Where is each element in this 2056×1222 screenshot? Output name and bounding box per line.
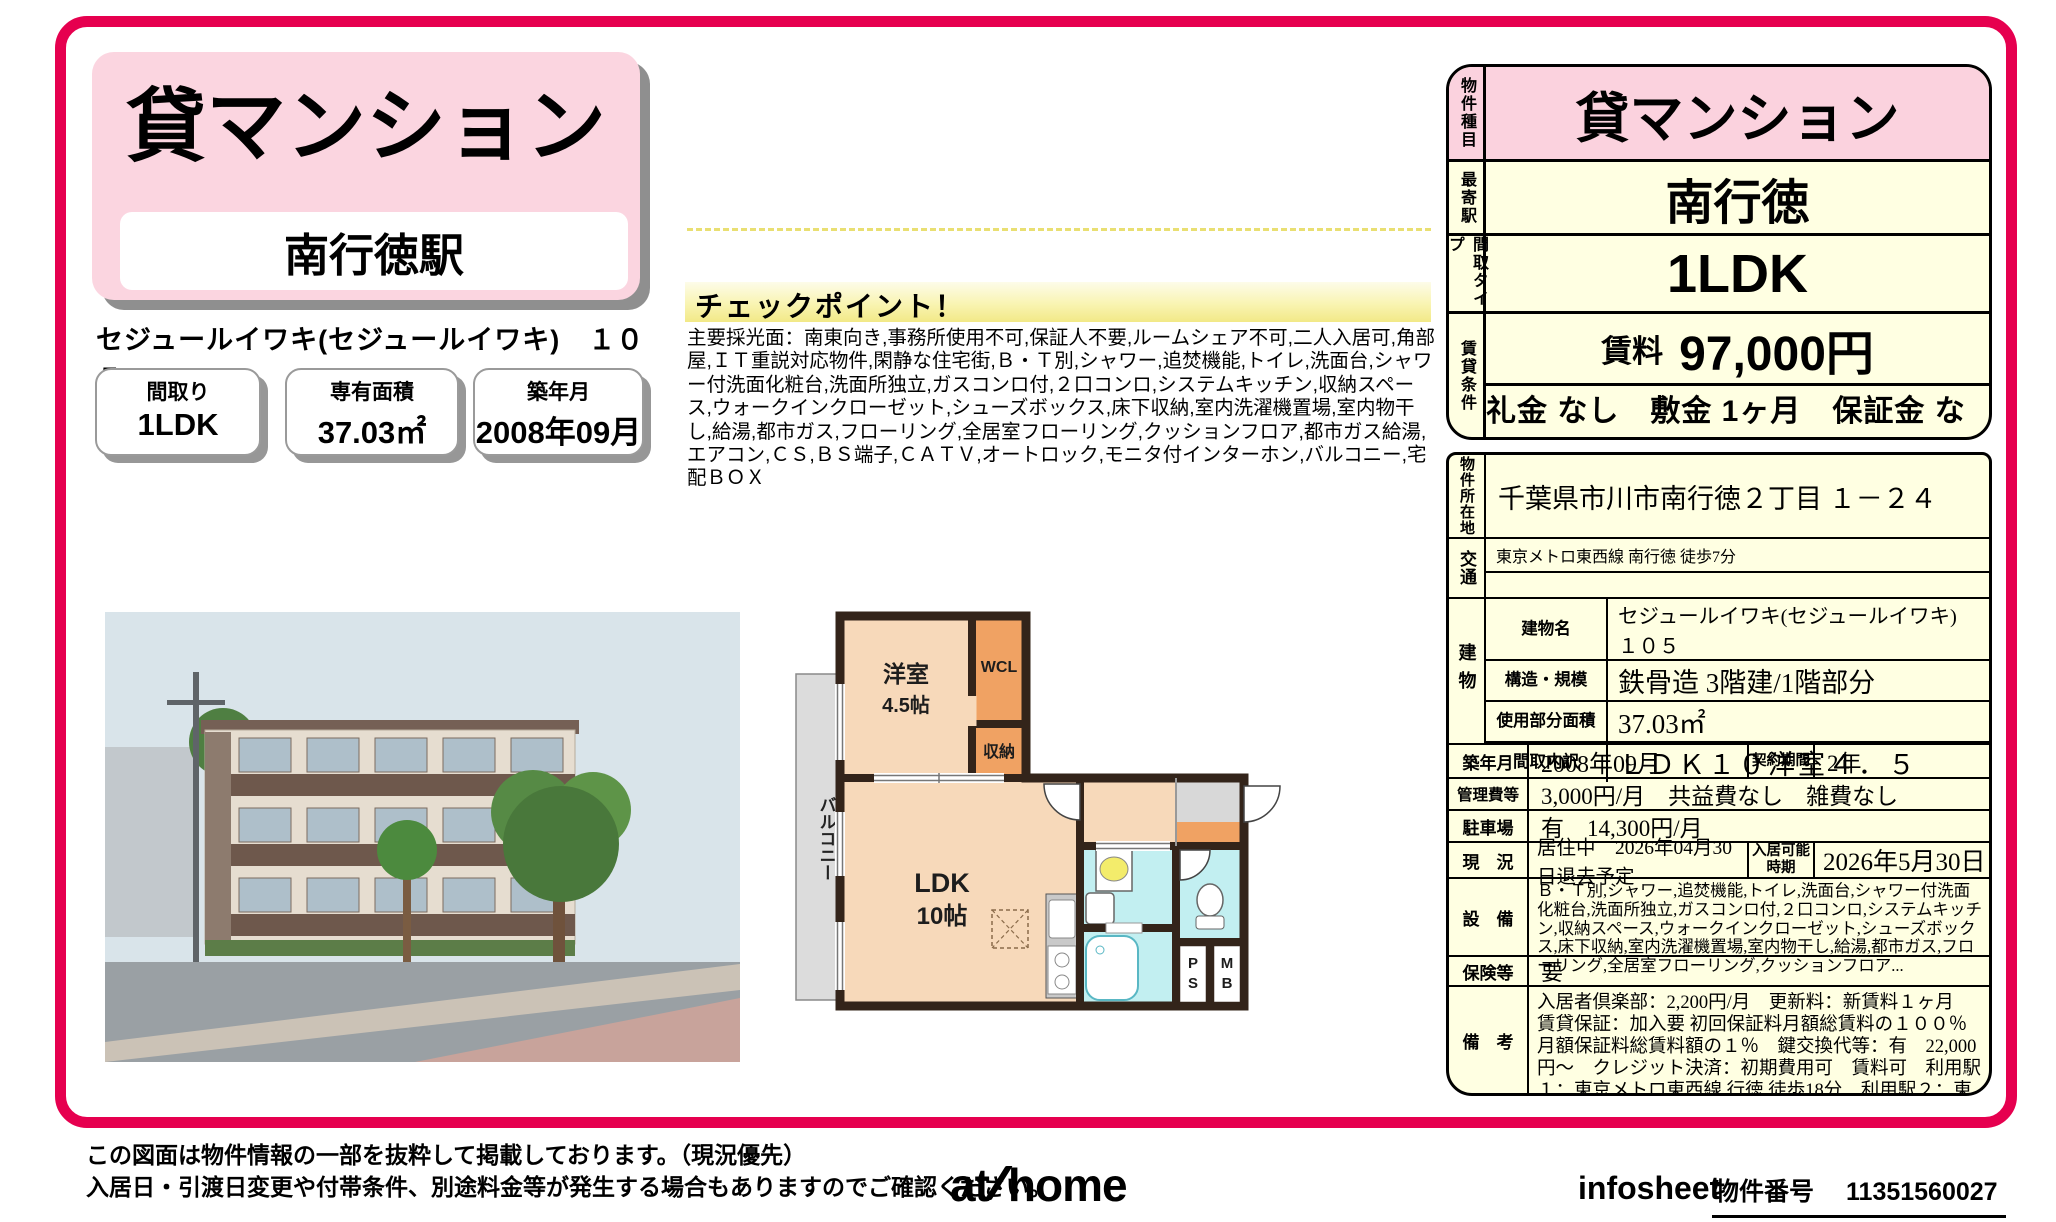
sliding-door-washroom [1096, 841, 1170, 851]
access-value: 東京メトロ東西線 南行徳 徒歩7分 [1486, 539, 1989, 573]
stat-box-area: 専有面積 37.03㎡ [285, 368, 459, 456]
floorplan: バルコニー [790, 606, 1390, 1064]
toilet-bowl [1197, 884, 1223, 916]
row-label: 駐車場 [1449, 811, 1529, 841]
photo-pole-arm [167, 700, 225, 705]
row-value: 入居者倶楽部：2,200円/月 更新料：新賃料１ヶ月 賃貸保証：加入要 初回保証… [1529, 987, 1989, 1093]
checkpoint-divider [687, 228, 1431, 231]
window-ldk-upper [835, 812, 845, 876]
infosheet-page: 貸マンション 南行徳駅 セジュールイワキ(セジュールイワキ) １０５ 間取り 1… [0, 0, 2056, 1222]
toilet-tank [1196, 916, 1224, 929]
built-value: 2008年09月 [1529, 745, 1747, 777]
kitchen-sink [1049, 900, 1075, 938]
row-label: 設 備 [1449, 879, 1529, 955]
photo-utility-pole [193, 672, 199, 972]
row-value: 37.03㎡ [1608, 702, 1989, 741]
row-label: 交通 [1449, 539, 1486, 597]
photo-stair-tower [205, 732, 231, 944]
stat-value: 2008年09月 [475, 407, 642, 452]
ps-label: S [1188, 975, 1198, 992]
row-value: 南行徳 [1486, 162, 1989, 233]
row-label: 築年月 [1449, 745, 1529, 777]
rent-wrap: 賃料 97,000円 礼金 なし 敷金 1ヶ月 保証金 なし [1486, 314, 1989, 437]
stove-burner [1055, 975, 1069, 989]
row-label: 保険等 [1449, 957, 1529, 985]
row-status: 現 況 居住中 2026年04月30日退去予定 入居可能時期 2026年5月30… [1449, 841, 1989, 877]
row-value: Ｂ・Ｔ別,シャワー,追焚機能,トイレ,洗面台,シャワー付洗面化粧台,洗面所独立,… [1529, 879, 1989, 955]
footer-disclaimer-2: 入居日・引渡日変更や付帯条件、別途料金等が発生する場合もありますのでご確認くださ… [86, 1168, 1052, 1202]
access-empty [1486, 573, 1989, 597]
building-photo [105, 612, 740, 1062]
stat-box-layout: 間取り 1LDK [95, 368, 261, 456]
available-value: 2026年5月30日 [1815, 843, 1989, 877]
mb-box [1213, 945, 1241, 1003]
photo-small-tree [377, 820, 437, 880]
western-room-label: 洋室 [883, 661, 929, 687]
rent-value: 97,000円 [1679, 314, 1874, 384]
athome-logo-at: at [950, 1158, 989, 1212]
row-value: セジュールイワキ(セジュールイワキ) １０５ [1608, 599, 1989, 659]
stat-value: 37.03㎡ [287, 407, 457, 452]
bathtub [1086, 936, 1138, 1000]
footer-disclaimer-1: この図面は物件情報の一部を抜粋して掲載しております。（現況優先） [86, 1136, 806, 1170]
row-value: 千葉県市川市南行徳２丁目 １－２４ [1486, 455, 1989, 537]
athome-logo-home: home [1008, 1158, 1127, 1212]
row-building: 建物 建物名 セジュールイワキ(セジュールイワキ) １０５ 構造・規模 鉄骨造 … [1449, 597, 1989, 743]
row-value: 貸マンション [1486, 67, 1989, 159]
access-col: 東京メトロ東西線 南行徳 徒歩7分 [1486, 539, 1989, 597]
balcony-label: バルコニー [817, 796, 837, 881]
row-label: 間取タイプ [1449, 236, 1486, 311]
ldk-size: 10帖 [917, 903, 968, 930]
ps-label: P [1188, 955, 1198, 972]
stat-box-built: 築年月 2008年09月 [473, 368, 644, 456]
ldk-label: LDK [914, 868, 970, 898]
summary-table: 物件種目 貸マンション 最寄駅 南行徳 間取タイプ 1LDK 賃貸条件 賃料 9… [1446, 64, 1992, 440]
infosheet-brand: infosheet [1578, 1170, 1720, 1207]
property-number: 物件番号 11351560027 [1712, 1172, 2006, 1218]
window-western [835, 684, 845, 760]
row-notes: 備 考 入居者倶楽部：2,200円/月 更新料：新賃料１ヶ月 賃貸保証：加入要 … [1449, 985, 1989, 1093]
wcl-opening [968, 696, 977, 726]
row-nearest-station: 最寄駅 南行徳 [1449, 159, 1989, 233]
wcl-label: WCL [981, 659, 1018, 676]
building-row-area: 使用部分面積 37.03㎡ [1486, 700, 1989, 741]
available-label: 入居可能時期 [1747, 843, 1815, 877]
row-value: 3,000円/月 共益費なし 雑費なし [1529, 779, 1989, 809]
mb-label: M [1221, 955, 1234, 972]
western-room-size: 4.5帖 [882, 694, 930, 717]
checkpoint-body: 主要採光面：南東向き,事務所使用不可,保証人不要,ルームシェア不可,二人入居可,… [687, 327, 1435, 491]
row-built: 築年月 2008年09月 契約期間 2年 [1449, 743, 1989, 777]
ps-box [1179, 945, 1207, 1003]
stat-label: 築年月 [475, 376, 642, 406]
row-access: 交通 東京メトロ東西線 南行徳 徒歩7分 [1449, 537, 1989, 597]
row-label: 構造・規模 [1486, 661, 1608, 700]
row-equipment: 設 備 Ｂ・Ｔ別,シャワー,追焚機能,トイレ,洗面台,シャワー付洗面化粧台,洗面… [1449, 877, 1989, 955]
checkpoint-title: チェックポイント！ [685, 282, 1431, 322]
stove-burner [1055, 953, 1069, 967]
property-number-label: 物件番号 [1714, 1172, 1814, 1208]
mb-label: B [1222, 975, 1233, 992]
row-insurance: 保険等 要 [1449, 955, 1989, 985]
storage-label: 収納 [983, 742, 1015, 761]
row-layout-type: 間取タイプ 1LDK [1449, 233, 1989, 311]
rent-label: 賃料 [1601, 326, 1663, 371]
photo-far-building [105, 747, 197, 937]
row-fee: 管理費等 3,000円/月 共益費なし 雑費なし [1449, 777, 1989, 809]
row-label: 建物 [1449, 599, 1486, 743]
row-label: 備 考 [1449, 987, 1529, 1093]
row-label: 物件所在地 [1449, 455, 1486, 537]
row-value: 1LDK [1486, 236, 1989, 311]
contract-label: 契約期間 [1747, 745, 1815, 777]
property-type-banner: 貸マンション 南行徳駅 [92, 52, 640, 300]
row-value: 要 [1529, 957, 1989, 985]
stat-label: 間取り [97, 376, 259, 406]
washing-machine [1086, 893, 1114, 924]
photo-hedge [205, 940, 575, 956]
building-row-name: 建物名 セジュールイワキ(セジュールイワキ) １０５ [1486, 599, 1989, 659]
station-badge: 南行徳駅 [120, 212, 628, 290]
photo-big-tree-c [503, 786, 619, 902]
row-value: 鉄骨造 3階建/1階部分 [1608, 661, 1989, 700]
stat-label: 専有面積 [287, 376, 457, 406]
row-label: 使用部分面積 [1486, 702, 1608, 741]
stat-value: 1LDK [97, 407, 259, 443]
row-label: 賃貸条件 [1449, 314, 1486, 437]
row-label: 管理費等 [1449, 779, 1529, 809]
sliding-door-western-ldk [874, 773, 1004, 783]
contract-value: 2年 [1815, 745, 1989, 777]
rent-line: 賃料 97,000円 [1486, 314, 1989, 386]
row-label: 最寄駅 [1449, 162, 1486, 233]
building-col: 建物名 セジュールイワキ(セジュールイワキ) １０５ 構造・規模 鉄骨造 3階建… [1486, 599, 1989, 743]
entrance-door-arc [1244, 786, 1280, 822]
vanity-bowl [1100, 857, 1128, 881]
row-label: 建物名 [1486, 599, 1608, 659]
status-value: 居住中 2026年04月30日退去予定 [1529, 843, 1747, 877]
row-label: 現 況 [1449, 843, 1529, 877]
row-label: 物件種目 [1449, 67, 1486, 159]
row-location: 物件所在地 千葉県市川市南行徳２丁目 １－２４ [1449, 455, 1989, 537]
room-genkan [1176, 780, 1244, 822]
athome-logo: at home [950, 1158, 1127, 1212]
row-rent-conditions: 賃貸条件 賃料 97,000円 礼金 なし 敷金 1ヶ月 保証金 なし [1449, 311, 1989, 437]
window-ldk-lower [835, 922, 845, 990]
building-row-structure: 構造・規模 鉄骨造 3階建/1階部分 [1486, 659, 1989, 700]
property-type-title: 貸マンション [92, 62, 640, 178]
row-property-type: 物件種目 貸マンション [1449, 67, 1989, 159]
detail-table: 物件所在地 千葉県市川市南行徳２丁目 １－２４ 交通 東京メトロ東西線 南行徳 … [1446, 452, 1992, 1096]
bath-door-opening [1106, 923, 1142, 933]
property-number-value: 11351560027 [1846, 1178, 1998, 1207]
rent-terms: 礼金 なし 敷金 1ヶ月 保証金 なし [1486, 386, 1989, 440]
